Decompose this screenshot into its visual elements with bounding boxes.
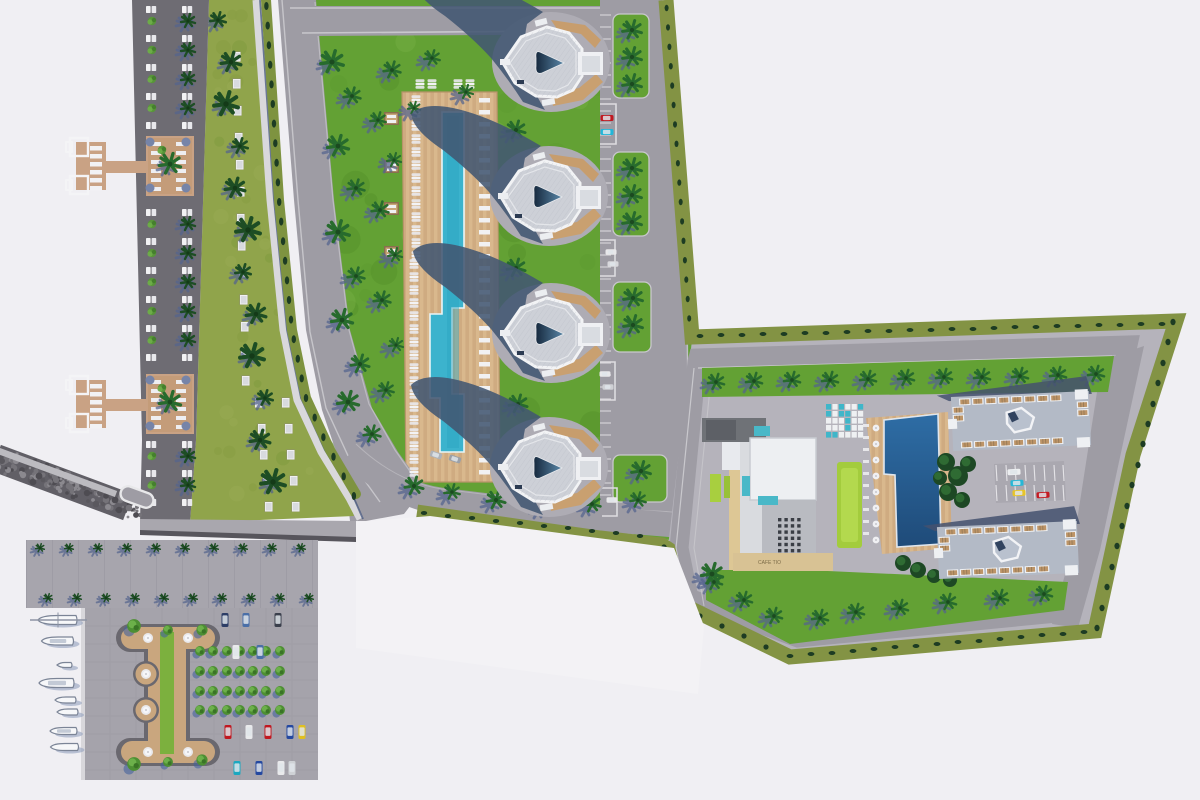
- svg-text:CAFE TIO: CAFE TIO: [758, 560, 781, 566]
